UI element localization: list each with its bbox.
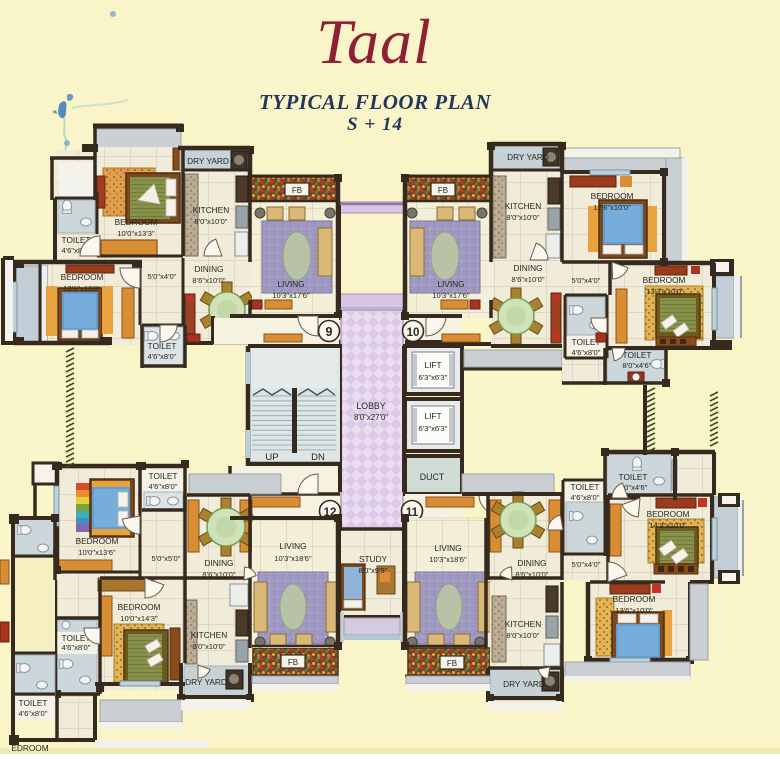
svg-text:DINING: DINING bbox=[517, 558, 546, 568]
svg-text:8'6"x10'0": 8'6"x10'0" bbox=[511, 275, 545, 284]
svg-text:UP: UP bbox=[265, 452, 278, 463]
svg-text:S + 14: S + 14 bbox=[347, 114, 403, 135]
svg-text:KITCHEN: KITCHEN bbox=[191, 630, 227, 640]
svg-text:6'3"x6'3": 6'3"x6'3" bbox=[419, 424, 448, 433]
svg-text:TYPICAL FLOOR PLAN: TYPICAL FLOOR PLAN bbox=[259, 90, 492, 114]
svg-text:8'0"x4'6": 8'0"x4'6" bbox=[623, 361, 652, 370]
svg-text:BEDROOM: BEDROOM bbox=[76, 536, 119, 546]
svg-text:TOILET: TOILET bbox=[149, 471, 178, 481]
svg-text:KITCHEN: KITCHEN bbox=[505, 619, 541, 629]
svg-text:5'0"x4'0": 5'0"x4'0" bbox=[148, 272, 177, 281]
svg-text:LIFT: LIFT bbox=[424, 411, 441, 421]
svg-text:10'3"x18'6": 10'3"x18'6" bbox=[429, 555, 467, 564]
svg-text:8'0"x10'0": 8'0"x10'0" bbox=[506, 631, 540, 640]
svg-text:8'0"x9'9": 8'0"x9'9" bbox=[359, 566, 388, 575]
svg-text:10'3"x17'6": 10'3"x17'6" bbox=[432, 291, 470, 300]
svg-text:13'3"x10'0": 13'3"x10'0" bbox=[646, 287, 684, 296]
svg-text:14'3"x10'0": 14'3"x10'0" bbox=[649, 521, 687, 530]
svg-text:5'0"x4'0": 5'0"x4'0" bbox=[572, 560, 601, 569]
svg-text:BEDROOM: BEDROOM bbox=[118, 602, 161, 612]
svg-text:BEDROOM: BEDROOM bbox=[613, 594, 656, 604]
svg-text:BEDROOM: BEDROOM bbox=[591, 191, 634, 201]
svg-text:LIVING: LIVING bbox=[437, 279, 464, 289]
svg-text:FB: FB bbox=[292, 186, 302, 195]
svg-text:TOILET: TOILET bbox=[619, 472, 648, 482]
svg-text:TOILET: TOILET bbox=[148, 341, 177, 351]
svg-text:4'6"x8'0": 4'6"x8'0" bbox=[149, 482, 178, 491]
svg-text:12'6"x10'0": 12'6"x10'0" bbox=[593, 203, 631, 212]
svg-text:LIVING: LIVING bbox=[277, 279, 304, 289]
svg-text:BEDROOM: BEDROOM bbox=[643, 275, 686, 285]
svg-text:DINING: DINING bbox=[194, 264, 223, 274]
svg-text:FB: FB bbox=[447, 659, 457, 668]
svg-text:4'6"x8'0": 4'6"x8'0" bbox=[572, 348, 601, 357]
svg-text:DRY YARD: DRY YARD bbox=[507, 152, 549, 162]
svg-text:8'6"x10'0": 8'6"x10'0" bbox=[192, 276, 226, 285]
svg-text:TOILET: TOILET bbox=[19, 698, 48, 708]
svg-text:LIFT: LIFT bbox=[424, 360, 441, 370]
svg-text:FB: FB bbox=[288, 658, 298, 667]
svg-text:BEDROOM: BEDROOM bbox=[61, 272, 104, 282]
svg-text:8'0"x10'0": 8'0"x10'0" bbox=[506, 213, 540, 222]
svg-text:LIVING: LIVING bbox=[279, 541, 306, 551]
svg-text:8'0"x10'0": 8'0"x10'0" bbox=[194, 217, 228, 226]
svg-text:10'3"x18'6": 10'3"x18'6" bbox=[274, 554, 312, 563]
svg-text:Taal: Taal bbox=[316, 6, 432, 77]
svg-text:4'6"x8'0": 4'6"x8'0" bbox=[148, 352, 177, 361]
svg-text:DRY YARD: DRY YARD bbox=[185, 677, 227, 687]
svg-text:13'6"x10'0": 13'6"x10'0" bbox=[615, 606, 653, 615]
svg-text:6'3"x6'3": 6'3"x6'3" bbox=[419, 373, 448, 382]
svg-text:DINING: DINING bbox=[513, 263, 542, 273]
svg-text:TOILET: TOILET bbox=[571, 482, 600, 492]
svg-text:BEDROOM: BEDROOM bbox=[115, 217, 158, 227]
svg-text:DN: DN bbox=[311, 452, 325, 463]
svg-text:9: 9 bbox=[326, 325, 333, 339]
svg-text:FB: FB bbox=[438, 186, 448, 195]
svg-text:4'6"x8'0": 4'6"x8'0" bbox=[571, 493, 600, 502]
svg-text:LIVING: LIVING bbox=[434, 543, 461, 553]
svg-text:DUCT: DUCT bbox=[420, 472, 445, 482]
svg-text:10'0"x14'3": 10'0"x14'3" bbox=[120, 614, 158, 623]
svg-text:10: 10 bbox=[407, 327, 420, 339]
svg-text:8'0"x27'0": 8'0"x27'0" bbox=[354, 413, 388, 422]
svg-text:BEDROOM: BEDROOM bbox=[647, 509, 690, 519]
svg-text:5'0"x4'0": 5'0"x4'0" bbox=[572, 276, 601, 285]
svg-text:4'6"x8'0": 4'6"x8'0" bbox=[62, 643, 91, 652]
svg-text:4'6"x8'0": 4'6"x8'0" bbox=[19, 709, 48, 718]
svg-text:DRY YARD: DRY YARD bbox=[503, 679, 545, 689]
svg-text:DRY YARD: DRY YARD bbox=[187, 156, 229, 166]
svg-text:5'0"x5'0": 5'0"x5'0" bbox=[152, 554, 181, 563]
svg-text:STUDY: STUDY bbox=[359, 554, 388, 564]
svg-text:8'0"x10'0": 8'0"x10'0" bbox=[192, 642, 226, 651]
svg-text:12'6"x10'0": 12'6"x10'0" bbox=[63, 284, 101, 293]
svg-text:10'0"x13'3": 10'0"x13'3" bbox=[117, 229, 155, 238]
svg-text:LOBBY: LOBBY bbox=[356, 401, 385, 411]
svg-text:KITCHEN: KITCHEN bbox=[193, 205, 229, 215]
svg-text:10'3"x17'6": 10'3"x17'6" bbox=[272, 291, 310, 300]
svg-text:10'0"x13'6": 10'0"x13'6" bbox=[78, 548, 116, 557]
svg-text:TOILET: TOILET bbox=[623, 350, 652, 360]
svg-text:KITCHEN: KITCHEN bbox=[505, 201, 541, 211]
svg-text:DINING: DINING bbox=[204, 558, 233, 568]
